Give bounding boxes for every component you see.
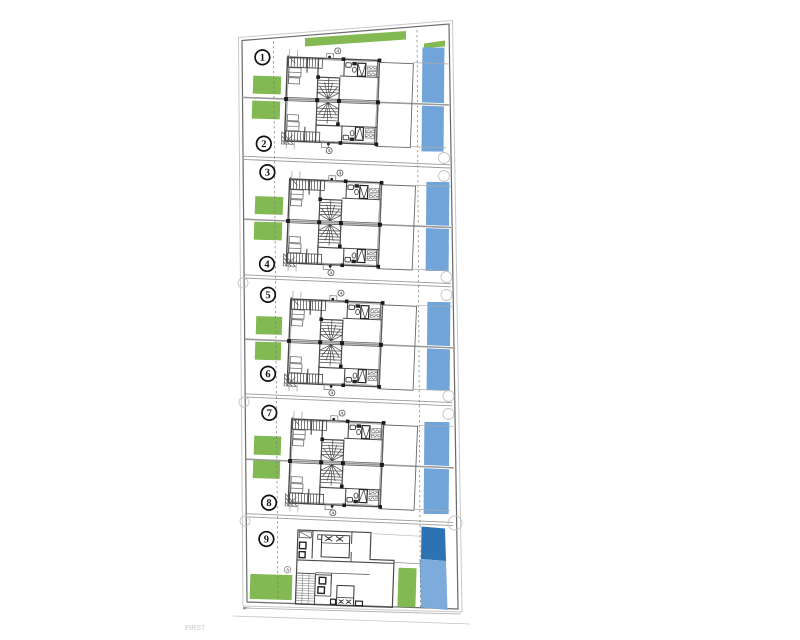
svg-text:FIRST: FIRST (185, 625, 206, 632)
